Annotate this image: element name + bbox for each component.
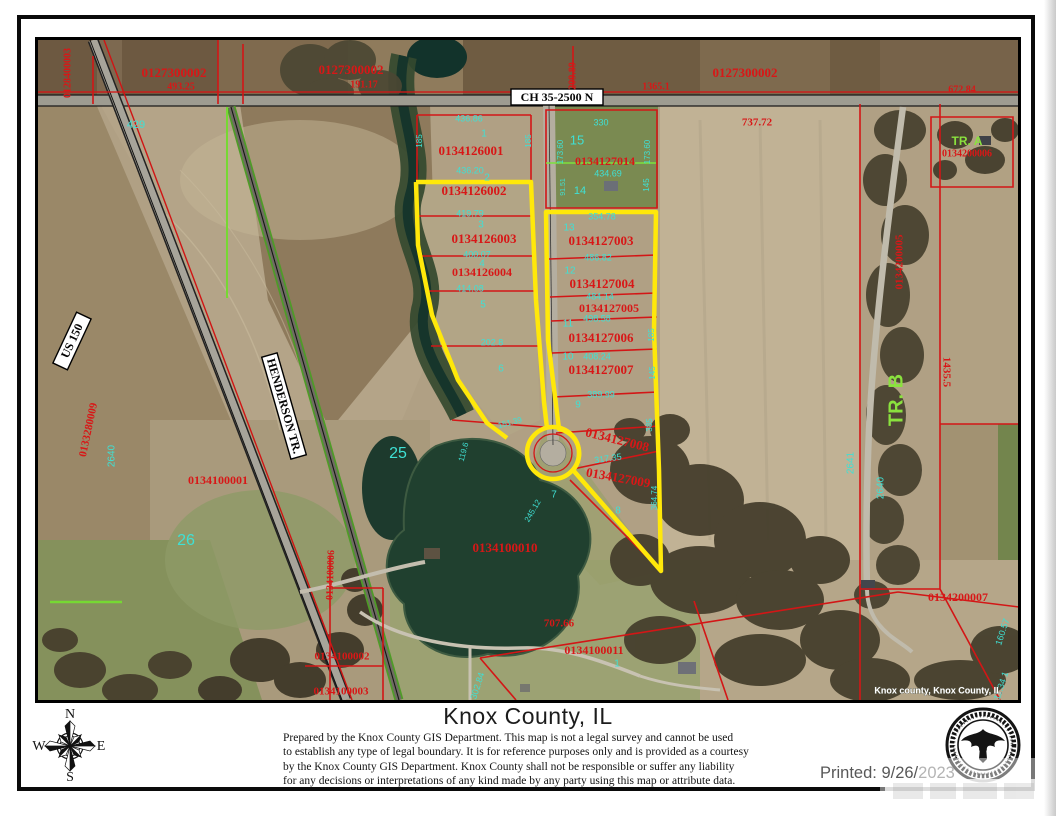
parcel-0134126001: 0134126001: [439, 143, 504, 158]
dim-330: 330: [593, 117, 608, 127]
dim-414-08: 414.08: [456, 283, 484, 293]
dim-486-82: 486.82: [584, 252, 612, 262]
map-canvas: CH 35-2500 N US 150 HENDERSON TR. 012840…: [0, 0, 1056, 816]
dim-408-24: 408.24: [583, 351, 611, 361]
dim-400-07: 400.07: [463, 249, 491, 259]
lot-2: 2: [484, 173, 490, 184]
dim-419-79: 419.79: [456, 208, 484, 218]
parcel-0134127014: 0134127014: [575, 154, 635, 168]
parcel-0134127006: 0134127006: [569, 330, 635, 345]
printed-year: 2023: [918, 764, 955, 782]
aerial-imagery: CH 35-2500 N US 150 HENDERSON TR. 012840…: [38, 36, 1030, 706]
tract-a: TR. A: [952, 134, 983, 148]
map-credit: Knox county, Knox County, IL: [874, 685, 1002, 695]
lot-14: 14: [574, 185, 586, 197]
compass-e: E: [97, 739, 106, 754]
dim-145-a: 145: [642, 178, 651, 192]
map-sheet: CH 35-2500 N US 150 HENDERSON TR. 012840…: [0, 0, 1056, 816]
parcel-0134127003: 0134127003: [569, 233, 635, 248]
dim-484-14: 484.14: [586, 291, 614, 301]
dim-173-60-e: 173.60: [643, 139, 652, 164]
disclaimer-line: by the Knox County GIS Department. Knox …: [283, 760, 753, 774]
dim-1365-1: 1365.1: [642, 81, 670, 92]
parcel-0134127007: 0134127007: [569, 362, 635, 377]
lot-10: 10: [562, 352, 574, 363]
lot-7: 7: [551, 490, 557, 501]
parcel-0134100002: 0134100002: [315, 651, 371, 663]
road-sign-label: CH 35-2500 N: [521, 90, 594, 104]
dim-145-b: 145: [648, 366, 657, 380]
compass-w: W: [32, 739, 46, 754]
dim-364-74: 364.74: [650, 485, 659, 510]
dim-672-84: 672.84: [948, 84, 976, 95]
dim-737-72: 737.72: [742, 117, 773, 129]
road-sign-ch-35-2500-n: CH 35-2500 N: [511, 89, 603, 105]
dim-91-51: 91.51: [560, 178, 567, 196]
dim-185-c: 185: [647, 328, 656, 342]
dim-209-89: 209.89: [567, 62, 578, 90]
parcel-0134100006: 0134100006: [324, 550, 337, 600]
parcel-0134200006: 0134200006: [942, 148, 992, 159]
parcel-0134126002: 0134126002: [442, 183, 507, 198]
dim-436-20: 436.20: [456, 165, 484, 175]
parcel-0134200005: 0134200005: [894, 234, 906, 290]
dim-173-60-w: 173.60: [556, 139, 565, 164]
dim-2641: 2641: [846, 451, 857, 474]
dim-707-66: 707.66: [544, 618, 575, 630]
dim-493-25: 493.25: [167, 81, 195, 92]
parcel-0134127004: 0134127004: [570, 276, 636, 291]
lot-11: 11: [563, 319, 574, 330]
dim-1435-5: 1435.5: [940, 357, 952, 388]
lot-1-south: 1: [614, 659, 620, 670]
disclaimer-line: Prepared by the Knox County GIS Departme…: [283, 731, 753, 745]
parcel-0134100011: 0134100011: [564, 643, 623, 657]
tract-b: TR. B: [885, 374, 907, 426]
lot-12: 12: [564, 266, 576, 277]
dim-202-8: 202.8: [481, 337, 504, 347]
section-25: 25: [389, 445, 407, 462]
lot-15: 15: [570, 132, 584, 147]
disclaimer-line: for any decisions or interpretations of …: [283, 774, 753, 788]
dim-498-58: 498.58: [583, 313, 611, 323]
parcel-0134100001: 0134100001: [188, 473, 248, 487]
parcel-0127300002-e: 0127300002: [713, 65, 778, 80]
dim-429: 429: [127, 119, 145, 131]
lot-4: 4: [479, 259, 485, 270]
dim-436-86: 436.86: [455, 113, 483, 123]
dim-354-78: 354.78: [588, 211, 616, 221]
dim-185-w: 185: [415, 134, 424, 148]
lot-9: 9: [575, 400, 581, 411]
parcel-0127300002-w: 0127300002: [142, 65, 207, 80]
disclaimer-line: to establish any type of legal boundary.…: [283, 745, 753, 759]
compass-n: N: [65, 707, 75, 722]
printed-prefix: Printed: 9/26/: [820, 764, 918, 782]
dim-434-69: 434.69: [594, 168, 622, 178]
lot-3: 3: [478, 220, 484, 231]
page-edge-shadow: [1044, 0, 1056, 816]
parcel-0134126003: 0134126003: [452, 231, 518, 246]
lot-8: 8: [615, 506, 621, 517]
dim-185-e: 185: [524, 134, 533, 148]
compass-rose: N S E W: [32, 707, 105, 785]
disclaimer-text: Prepared by the Knox County GIS Departme…: [283, 731, 753, 789]
lot-1: 1: [481, 129, 487, 140]
parcel-0134200007: 0134200007: [928, 590, 988, 604]
parcel-0128400003: 0128400003: [62, 48, 73, 98]
dim-2640-w: 2640: [107, 444, 118, 467]
dim-191-17: 191.17: [350, 79, 378, 90]
dim-389-99: 389.99: [587, 389, 615, 399]
section-26: 26: [177, 532, 195, 549]
dim-385: 385: [645, 418, 654, 432]
lot-6: 6: [498, 364, 504, 375]
printed-date: Printed: 9/26/2023: [820, 764, 955, 783]
parcel-0134100003: 0134100003: [314, 686, 370, 698]
compass-s: S: [66, 770, 74, 785]
dim-2640-e: 2640: [876, 476, 887, 499]
parcel-0134100010: 0134100010: [473, 540, 538, 555]
lot-5: 5: [480, 300, 486, 311]
map-title: Knox County, IL: [298, 703, 758, 730]
parcel-0127300002-m: 0127300002: [319, 62, 384, 77]
lot-13: 13: [563, 223, 575, 234]
